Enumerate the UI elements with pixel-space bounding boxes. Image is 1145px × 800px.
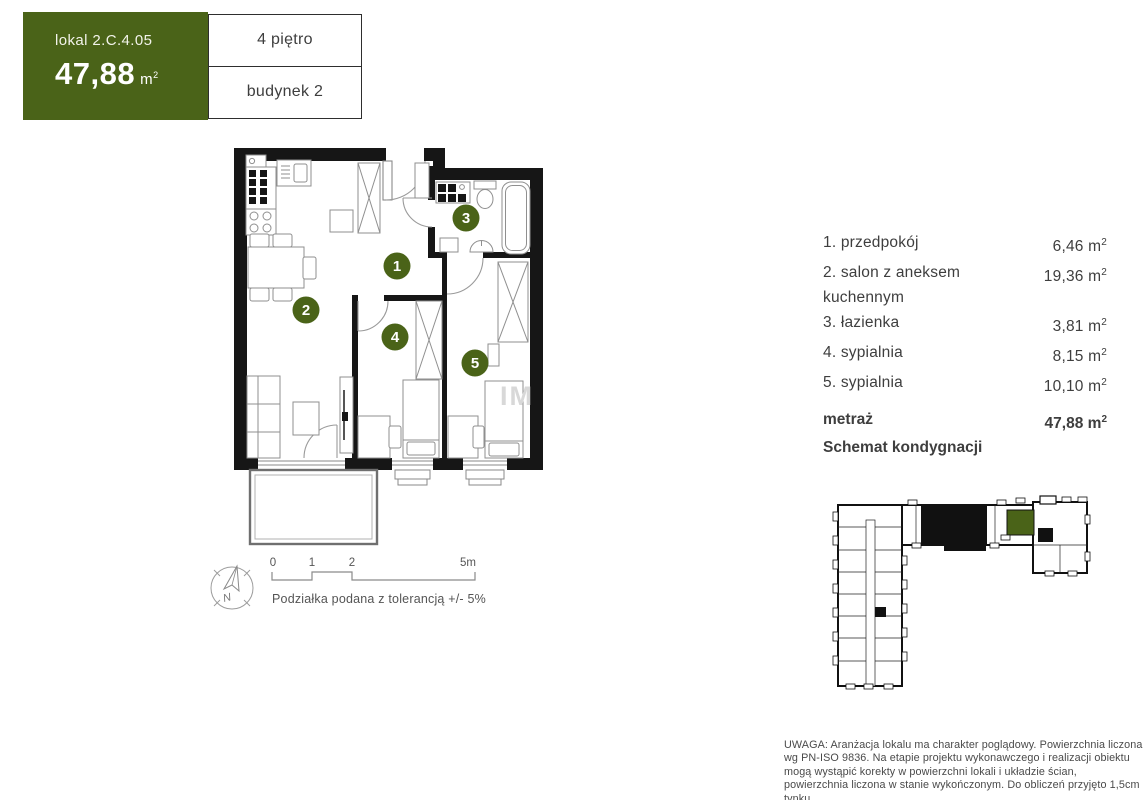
floor-building-boxes: 4 piętro budynek 2 <box>208 14 362 119</box>
room-marker: 5 <box>462 350 489 377</box>
room-area: 3,81 <box>1053 319 1084 336</box>
total-area-label: metraż <box>823 408 873 436</box>
scale-bar: 0 1 2 5m <box>266 556 481 586</box>
compass: N <box>203 558 261 616</box>
scale-tolerance-note: Podziałka podana z tolerancją +/- 5% <box>272 592 486 606</box>
svg-text:5m: 5m <box>460 557 476 569</box>
unit-number-label: lokal 2.C.4.05 <box>55 32 208 49</box>
room-label: 3. łazienka <box>823 310 899 340</box>
list-item: 2. salon z aneksem kuchennym19,36 m2 <box>823 260 1107 311</box>
total-area-row: metraż 47,88 m2 <box>823 408 1107 436</box>
room-area: 10,10 <box>1044 378 1084 395</box>
svg-text:5: 5 <box>471 355 479 372</box>
list-item: 4. sypialnia8,15 m2 <box>823 340 1107 370</box>
room-label: 2. salon z aneksem kuchennym <box>823 260 1044 311</box>
flat-card-page: lokal 2.C.4.05 47,88m2 4 piętro budynek … <box>0 0 1145 800</box>
room-marker: 3 <box>453 205 480 232</box>
list-item: 1. przedpokój6,46 m2 <box>823 230 1107 260</box>
svg-text:1: 1 <box>309 557 315 569</box>
room-label: 1. przedpokój <box>823 230 919 260</box>
room-label: 4. sypialnia <box>823 340 903 370</box>
list-item: 5. sypialnia10,10 m2 <box>823 370 1107 400</box>
list-item: 3. łazienka3,81 m2 <box>823 310 1107 340</box>
svg-text:4: 4 <box>391 329 400 346</box>
total-area-value: 47,88 <box>1045 415 1084 432</box>
floor-plan-drawing: IM 1 2 3 4 5 <box>225 140 555 550</box>
watermark: IM <box>500 381 534 411</box>
svg-text:2: 2 <box>349 557 355 569</box>
room-area: 6,46 <box>1053 238 1084 255</box>
room-markers: 1 2 3 4 5 <box>293 205 489 377</box>
highlighted-unit <box>1007 510 1034 535</box>
legal-disclaimer: UWAGA: Aranżacja lokalu ma charakter pog… <box>784 739 1144 800</box>
svg-text:1: 1 <box>393 258 401 275</box>
svg-text:2: 2 <box>302 302 310 319</box>
room-marker: 4 <box>382 324 409 351</box>
door-arcs <box>304 161 483 458</box>
storey-schematic <box>830 493 1100 698</box>
room-marker: 2 <box>293 297 320 324</box>
room-area: 19,36 <box>1044 268 1084 285</box>
room-area-list: 1. przedpokój6,46 m2 2. salon z aneksem … <box>823 230 1107 399</box>
balcony <box>250 470 377 544</box>
floor-box: 4 piętro <box>209 15 361 67</box>
north-label: N <box>222 591 233 605</box>
unit-summary-card: lokal 2.C.4.05 47,88m2 <box>23 12 208 120</box>
totals-block: metraż 47,88 m2 Schemat kondygnacji <box>823 408 1107 460</box>
room-label: 5. sypialnia <box>823 370 903 400</box>
svg-text:0: 0 <box>270 557 276 569</box>
north-needle-icon <box>224 566 239 591</box>
svg-text:3: 3 <box>462 210 470 227</box>
unit-area: 47,88m2 <box>55 56 208 92</box>
storey-schematic-label: Schemat kondygnacji <box>823 436 1107 460</box>
building-box: budynek 2 <box>209 67 361 119</box>
room-marker: 1 <box>384 253 411 280</box>
room-area: 8,15 <box>1053 348 1084 365</box>
